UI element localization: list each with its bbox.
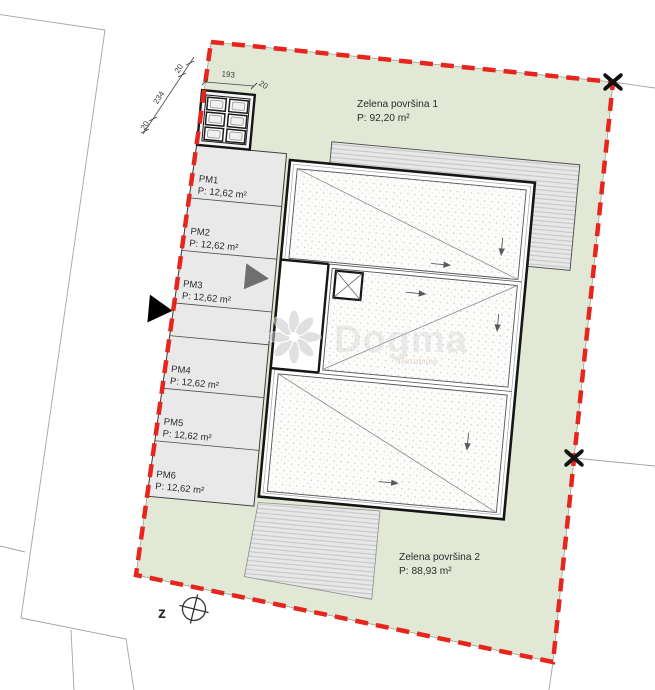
neighbor-parcel-left xyxy=(0,14,105,618)
neighbor-parcel-bottom xyxy=(21,618,134,690)
bin-enclosure xyxy=(197,90,255,150)
neighbor-divider xyxy=(0,546,25,552)
stall-label: PM1 xyxy=(198,174,218,187)
stall-label: PM2 xyxy=(190,226,210,239)
green-area-1-area: P: 92,20 m² xyxy=(357,113,410,124)
stall-label: PM3 xyxy=(183,279,203,292)
parcel-stub-bottom xyxy=(549,662,553,690)
orientation-label: z xyxy=(158,605,166,622)
orientation-symbol: z xyxy=(158,591,212,627)
green-area-1-label: Zelena površina 1 xyxy=(357,99,438,110)
survey-point-icon xyxy=(176,591,212,627)
stall-label: PM5 xyxy=(163,416,183,429)
watermark-flower-icon xyxy=(267,310,321,364)
site-plan-drawing: PM1 P: 12,62 m² PM2 P: 12,62 m² PM3 P: 1… xyxy=(0,0,655,690)
neighbor-line xyxy=(71,630,74,690)
watermark-tagline: nekretnine xyxy=(396,357,438,366)
green-area-2-label: Zelena površina 2 xyxy=(399,552,480,563)
dim-left-height: 234 xyxy=(151,89,166,106)
watermark: Dogma nekretnine xyxy=(267,310,468,366)
stall-label: PM6 xyxy=(156,469,176,482)
green-area-2-area: P: 88,93 m² xyxy=(399,566,452,577)
parcel-stub-right xyxy=(574,458,655,466)
watermark-title: Dogma xyxy=(334,319,468,361)
site-plan-page: PM1 P: 12,62 m² PM2 P: 12,62 m² PM3 P: 1… xyxy=(0,0,655,690)
dim-top-width: 193 xyxy=(221,69,236,79)
stall-label: PM4 xyxy=(171,364,191,377)
